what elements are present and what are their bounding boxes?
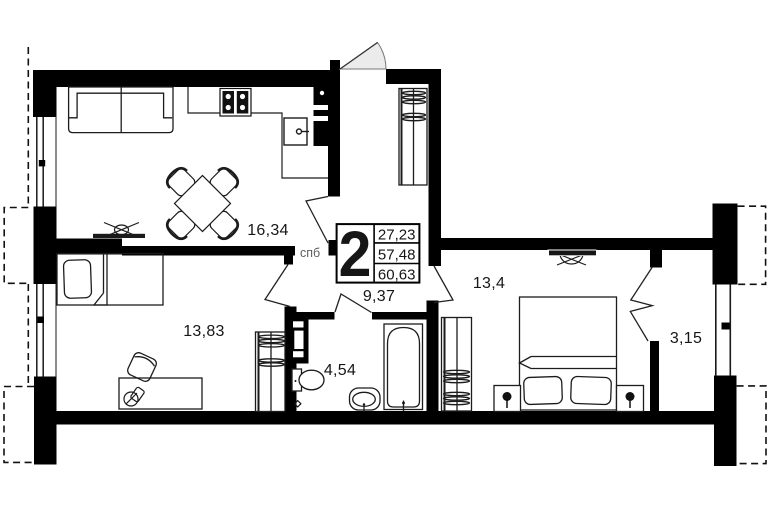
svg-text:16,34: 16,34 <box>247 222 289 239</box>
svg-text:4,54: 4,54 <box>324 362 356 379</box>
svg-text:13,83: 13,83 <box>183 323 225 340</box>
svg-text:2: 2 <box>339 219 372 291</box>
svg-text:27,23: 27,23 <box>378 227 416 244</box>
svg-text:9,37: 9,37 <box>363 288 395 305</box>
svg-text:60,63: 60,63 <box>378 267 416 284</box>
svg-text:57,48: 57,48 <box>378 247 416 264</box>
svg-text:13,4: 13,4 <box>473 275 505 292</box>
svg-text:3,15: 3,15 <box>670 330 702 347</box>
svg-text:спб: спб <box>300 246 320 260</box>
